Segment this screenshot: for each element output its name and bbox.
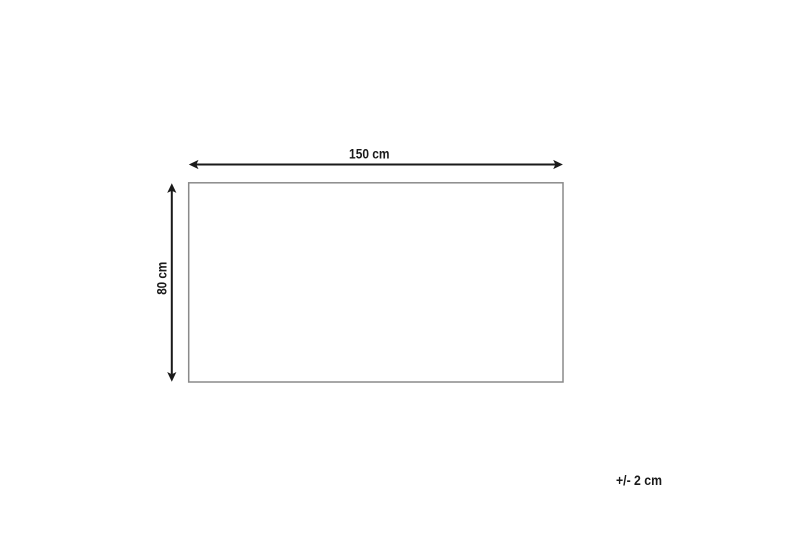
svg-text:150 cm: 150 cm <box>349 146 390 162</box>
svg-text:+/- 2 cm: +/- 2 cm <box>616 472 662 488</box>
svg-text:80 cm: 80 cm <box>154 262 170 295</box>
